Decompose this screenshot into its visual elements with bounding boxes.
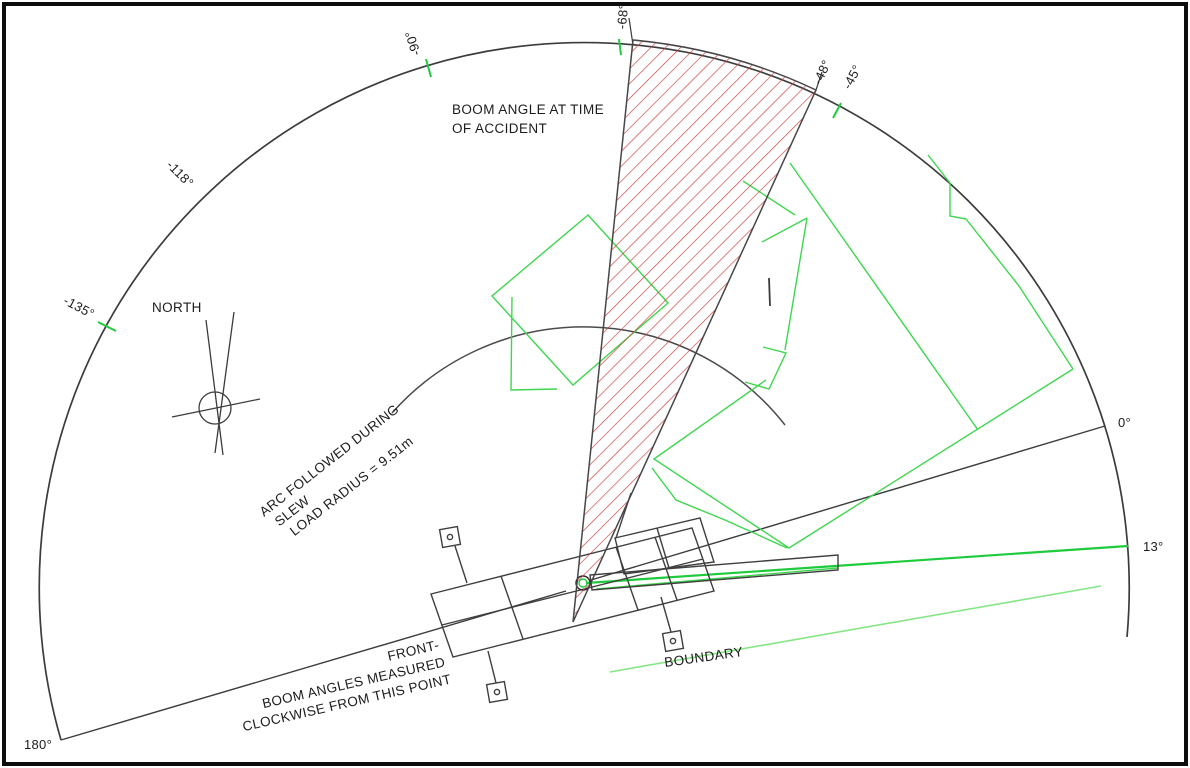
site-plan-page: NORTH BOOM ANGLE AT TIME OF ACCIDENT ARC… <box>0 0 1190 768</box>
survey-mark <box>769 278 770 306</box>
drawing-border <box>4 4 1186 764</box>
boom-angle-note-line2: OF ACCIDENT <box>452 121 547 136</box>
angle-label-180: 180° <box>24 737 52 752</box>
angle-label-0: 0° <box>1118 415 1131 430</box>
angle-label-minus68: -68° <box>614 3 631 29</box>
boom-angle-note-line1: BOOM ANGLE AT TIME <box>452 102 604 117</box>
site-plan-drawing: NORTH BOOM ANGLE AT TIME OF ACCIDENT ARC… <box>0 0 1190 768</box>
angle-label-13: 13° <box>1143 539 1164 554</box>
north-label: NORTH <box>152 300 202 315</box>
